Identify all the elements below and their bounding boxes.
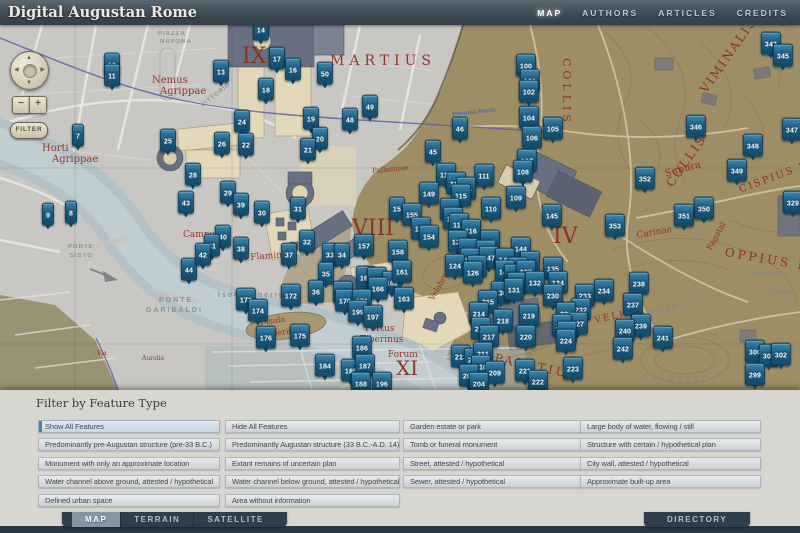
map-marker-number: 161: [396, 270, 408, 277]
map-marker-number: 145: [546, 214, 558, 221]
map-marker[interactable]: 220: [516, 325, 536, 348]
nav-item[interactable]: MAP: [537, 8, 562, 18]
map-marker[interactable]: 50: [317, 62, 333, 85]
map-marker-number: 239: [635, 324, 647, 331]
map-marker-number: 14: [257, 28, 265, 35]
map-marker[interactable]: 237: [623, 293, 643, 316]
map-marker-number: 21: [304, 148, 312, 155]
map-marker[interactable]: 36: [308, 280, 324, 303]
map-marker[interactable]: 34: [334, 243, 350, 266]
pan-control[interactable]: ▲ ▼ ◀ ▶: [10, 51, 49, 90]
map-marker-number: 230: [547, 294, 559, 301]
map-marker-number: 18: [262, 88, 270, 95]
map-marker[interactable]: 350: [694, 197, 714, 220]
map-marker-number: 166: [372, 287, 384, 294]
map-marker-number: 223: [567, 367, 579, 374]
map-marker-number: 48: [346, 118, 354, 125]
map-marker-number: 238: [633, 282, 645, 289]
map-marker[interactable]: 224: [556, 329, 576, 352]
map-marker-number: 353: [609, 224, 621, 231]
filter-type-button[interactable]: Sewer, attested / hypothetical: [403, 475, 581, 488]
map-marker-number: 175: [294, 334, 306, 341]
map-marker-number: 8: [69, 211, 73, 218]
map-marker-number: 220: [520, 335, 532, 342]
pan-left-icon[interactable]: ◀: [14, 67, 19, 73]
map-marker-number: 188: [355, 382, 367, 389]
map-marker-number: 176: [260, 336, 272, 343]
map-marker-number: 31: [294, 207, 302, 214]
map-marker[interactable]: 43: [178, 191, 194, 214]
map-marker[interactable]: 42: [195, 243, 211, 266]
filter-type-button[interactable]: Water channel below ground, attested / h…: [225, 475, 400, 488]
map-marker-number: 149: [423, 192, 435, 199]
map-marker-number: 348: [747, 144, 759, 151]
map-marker-number: 13: [217, 70, 225, 77]
main-nav: MAP AUTHORS ARTICLES CREDITS: [537, 8, 788, 18]
map-marker-number: 19: [307, 117, 315, 124]
map-marker-number: 109: [510, 196, 522, 203]
view-tab[interactable]: TERRAIN: [120, 512, 193, 527]
map-marker[interactable]: 157: [354, 234, 374, 257]
map-marker[interactable]: 299: [745, 363, 765, 386]
filter-type-button[interactable]: Predominantly Augustan structure (33 B.C…: [225, 438, 400, 451]
map-marker-number: 237: [627, 303, 639, 310]
map-marker[interactable]: 48: [342, 108, 358, 131]
map-marker-number: 37: [285, 253, 293, 260]
map-marker-number: 29: [224, 191, 232, 198]
map-marker-number: 187: [359, 364, 371, 371]
map-marker[interactable]: 345: [773, 44, 793, 67]
map-marker[interactable]: 302: [771, 343, 791, 366]
map-marker-number: 43: [182, 201, 190, 208]
map-marker[interactable]: 38: [233, 237, 249, 260]
map-marker[interactable]: 9: [42, 203, 54, 226]
map-marker[interactable]: 109: [506, 186, 526, 209]
filter-type-button[interactable]: Predominantly pre-Augustan structure (pr…: [38, 438, 220, 451]
map-marker[interactable]: 163: [394, 287, 414, 310]
map-marker-number: 242: [617, 347, 629, 354]
map-marker-number: 105: [547, 127, 559, 134]
map-marker[interactable]: 352: [635, 167, 655, 190]
map-marker-number: 32: [303, 240, 311, 247]
map-marker[interactable]: 102: [519, 80, 539, 103]
filter-type-button[interactable]: City wall, attested / hypothetical: [580, 457, 761, 470]
map-marker-number: 11: [108, 74, 116, 81]
map-marker-number: 49: [366, 105, 374, 112]
map-marker-number: 347: [786, 128, 798, 135]
map-marker-number: 163: [398, 297, 410, 304]
map-marker[interactable]: 234: [594, 279, 614, 302]
map-marker-number: 16: [289, 68, 297, 75]
map-marker-number: 45: [429, 150, 437, 157]
map-marker[interactable]: 241: [653, 326, 673, 349]
map-marker-number: 33: [326, 253, 334, 260]
map-marker[interactable]: 145: [542, 204, 562, 227]
map-marker-number: 34: [338, 253, 346, 260]
map-marker[interactable]: 21: [300, 138, 316, 161]
filter-type-button[interactable]: Tomb or funeral monument: [403, 438, 581, 451]
filter-type-button[interactable]: Approximate built-up area: [580, 475, 761, 488]
map-marker-number: 17: [273, 57, 281, 64]
map-marker[interactable]: 39: [233, 193, 249, 216]
map-marker-number: 157: [358, 244, 370, 251]
map-marker[interactable]: 13: [213, 60, 229, 83]
map-marker-number: 218: [497, 319, 509, 326]
map-marker-number: 351: [678, 214, 690, 221]
map-marker-number: 104: [523, 116, 535, 123]
filter-type-button[interactable]: Extant remains of uncertain plan: [225, 457, 400, 470]
map-marker[interactable]: 28: [185, 163, 201, 186]
pan-down-icon[interactable]: ▼: [26, 80, 32, 86]
map-marker-number: 154: [423, 235, 435, 242]
map-marker[interactable]: 22: [238, 133, 254, 156]
map-marker[interactable]: 172: [281, 284, 301, 307]
filter-type-button[interactable]: Show All Features: [38, 420, 220, 433]
pan-up-icon[interactable]: ▲: [26, 55, 32, 61]
map-marker-number: 46: [456, 127, 464, 134]
map-marker[interactable]: 349: [727, 159, 747, 182]
map-marker[interactable]: 184: [315, 354, 335, 377]
map-marker-number: 24: [238, 120, 246, 127]
map-marker-number: 240: [619, 329, 631, 336]
map-marker[interactable]: 31: [290, 197, 306, 220]
map-marker[interactable]: 26: [214, 132, 230, 155]
map-marker[interactable]: 353: [605, 214, 625, 237]
nav-item[interactable]: CREDITS: [737, 8, 788, 18]
map-marker[interactable]: 223: [563, 357, 583, 380]
map-marker-number: 20: [316, 137, 324, 144]
pan-right-icon[interactable]: ▶: [40, 67, 45, 73]
map-marker-number: 110: [485, 207, 497, 214]
map-marker-number: 184: [319, 364, 331, 371]
filter-panel-title: Filter by Feature Type: [36, 396, 167, 410]
map-marker-number: 349: [731, 169, 743, 176]
map-marker[interactable]: 197: [363, 305, 383, 328]
map-marker[interactable]: 348: [743, 134, 763, 157]
map-marker-number: 302: [775, 353, 787, 360]
map-marker-number: 234: [598, 289, 610, 296]
nav-item[interactable]: ARTICLES: [658, 8, 717, 18]
map-marker-number: 172: [285, 294, 297, 301]
map-marker[interactable]: 154: [419, 225, 439, 248]
directory-tab[interactable]: DIRECTORY: [654, 512, 740, 527]
map-marker-number: 42: [199, 253, 207, 260]
map-marker-number: 36: [312, 290, 320, 297]
map-marker-number: 44: [185, 268, 193, 275]
map-marker[interactable]: 49: [362, 95, 378, 118]
filter-toggle-button[interactable]: FILTER: [10, 122, 48, 139]
map-marker[interactable]: 106: [522, 126, 542, 149]
map-marker[interactable]: 18: [258, 78, 274, 101]
map-marker-number: 102: [523, 90, 535, 97]
map-marker[interactable]: 110: [481, 197, 501, 220]
map-marker[interactable]: 37: [281, 243, 297, 266]
map-marker-number: 158: [392, 250, 404, 257]
app-header: Digital Augustan Rome MAP AUTHORS ARTICL…: [0, 0, 800, 25]
zoom-out-button[interactable]: −: [12, 96, 29, 114]
map-marker-number: 329: [787, 201, 799, 208]
map-marker-number: 126: [467, 271, 479, 278]
map-marker-number: 222: [532, 380, 544, 387]
map-marker[interactable]: 149: [419, 182, 439, 205]
filter-type-button[interactable]: Street, attested / hypothetical: [403, 457, 581, 470]
map-marker-number: 108: [517, 170, 529, 177]
map-marker-number: 25: [164, 139, 172, 146]
map-marker-number: 352: [639, 177, 651, 184]
map-marker[interactable]: 175: [290, 324, 310, 347]
map-marker[interactable]: 32: [299, 230, 315, 253]
map-marker-number: 28: [189, 173, 197, 180]
map-marker-number: 22: [242, 143, 250, 150]
map-marker-number: 346: [690, 125, 702, 132]
filter-type-button[interactable]: Area without information: [225, 494, 400, 507]
map-marker-number: 106: [526, 136, 538, 143]
map-marker[interactable]: 238: [629, 272, 649, 295]
view-tab[interactable]: SATELLITE: [193, 512, 276, 527]
map-marker-number: 39: [237, 203, 245, 210]
map-marker-number: 217: [483, 335, 495, 342]
zoom-in-button[interactable]: +: [29, 96, 47, 114]
nav-item[interactable]: AUTHORS: [582, 8, 638, 18]
map-marker-number: 132: [529, 281, 541, 288]
page-title: Digital Augustan Rome: [8, 4, 197, 21]
filter-type-button[interactable]: Defined urban space: [38, 494, 220, 507]
pan-control-hub: [23, 64, 37, 78]
filter-type-button[interactable]: Garden estate or park: [403, 420, 581, 433]
map-marker-number: 38: [237, 247, 245, 254]
filter-type-button[interactable]: Hide All Features: [225, 420, 400, 433]
map-marker[interactable]: 16: [285, 58, 301, 81]
map-marker-number: 174: [252, 309, 264, 316]
map-marker-number: 299: [749, 373, 761, 380]
zoom-controls: − +: [12, 96, 47, 114]
map-marker-number: 35: [322, 272, 330, 279]
directory-tab-group: DIRECTORY: [644, 512, 750, 527]
map-marker[interactable]: 105: [543, 117, 563, 140]
map-marker[interactable]: 30: [254, 201, 270, 224]
map-marker[interactable]: 131: [504, 278, 524, 301]
map-marker-number: 7: [76, 134, 80, 141]
map-marker-number: 15: [393, 207, 401, 214]
map-marker-number: 350: [698, 207, 710, 214]
map-marker[interactable]: 108: [513, 160, 533, 183]
map-marker[interactable]: 347: [782, 118, 800, 141]
filter-type-button[interactable]: Large body of water, flowing / still: [580, 420, 761, 433]
filter-type-button[interactable]: Monument with only an approximate locati…: [38, 457, 220, 470]
map-marker-number: 204: [473, 382, 485, 389]
map-marker-number: 219: [523, 314, 535, 321]
map-marker[interactable]: 346: [686, 115, 706, 138]
map-marker-number: 30: [258, 211, 266, 218]
map-marker-number: 209: [489, 371, 501, 378]
map-marker[interactable]: 329: [783, 191, 800, 214]
map-marker-number: 197: [367, 315, 379, 322]
map-marker[interactable]: 7: [72, 124, 84, 147]
map-marker[interactable]: 174: [248, 299, 268, 322]
map-marker[interactable]: 24: [234, 110, 250, 133]
map-marker[interactable]: 176: [256, 326, 276, 349]
map-marker[interactable]: 45: [425, 140, 441, 163]
map-marker[interactable]: 242: [613, 337, 633, 360]
map-marker-number: 111: [478, 174, 490, 181]
map-marker-number: 345: [777, 54, 789, 61]
map-view-tabs: MAP TERRAIN SATELLITE: [62, 512, 287, 527]
map-marker[interactable]: 46: [452, 117, 468, 140]
map-marker-number: 196: [376, 382, 388, 389]
map-marker[interactable]: 161: [392, 260, 412, 283]
map-marker-number: 224: [560, 339, 572, 346]
view-tab[interactable]: MAP: [72, 512, 120, 527]
map-marker-number: 50: [321, 72, 329, 79]
map-marker[interactable]: 11: [104, 64, 120, 87]
map-marker-number: 131: [508, 288, 520, 295]
map-marker[interactable]: 17: [269, 47, 285, 70]
map-marker-number: 26: [218, 142, 226, 149]
map-marker-number: 241: [657, 336, 669, 343]
filter-type-button[interactable]: Structure with certain / hypothetical pl…: [580, 438, 761, 451]
map-marker-number: 40: [219, 235, 227, 242]
map-marker[interactable]: 25: [160, 129, 176, 152]
filter-type-button[interactable]: Water channel above ground, attested / h…: [38, 475, 220, 488]
map-marker[interactable]: 126: [463, 261, 483, 284]
map-marker-number: 124: [449, 264, 461, 271]
map-marker[interactable]: 111: [474, 164, 494, 187]
bottom-bar: [0, 526, 800, 533]
map-marker[interactable]: 351: [674, 204, 694, 227]
map-marker-number: 9: [46, 213, 50, 220]
map-marker[interactable]: 219: [519, 304, 539, 327]
map-marker-number: 186: [356, 346, 368, 353]
map-marker[interactable]: 8: [65, 201, 77, 224]
